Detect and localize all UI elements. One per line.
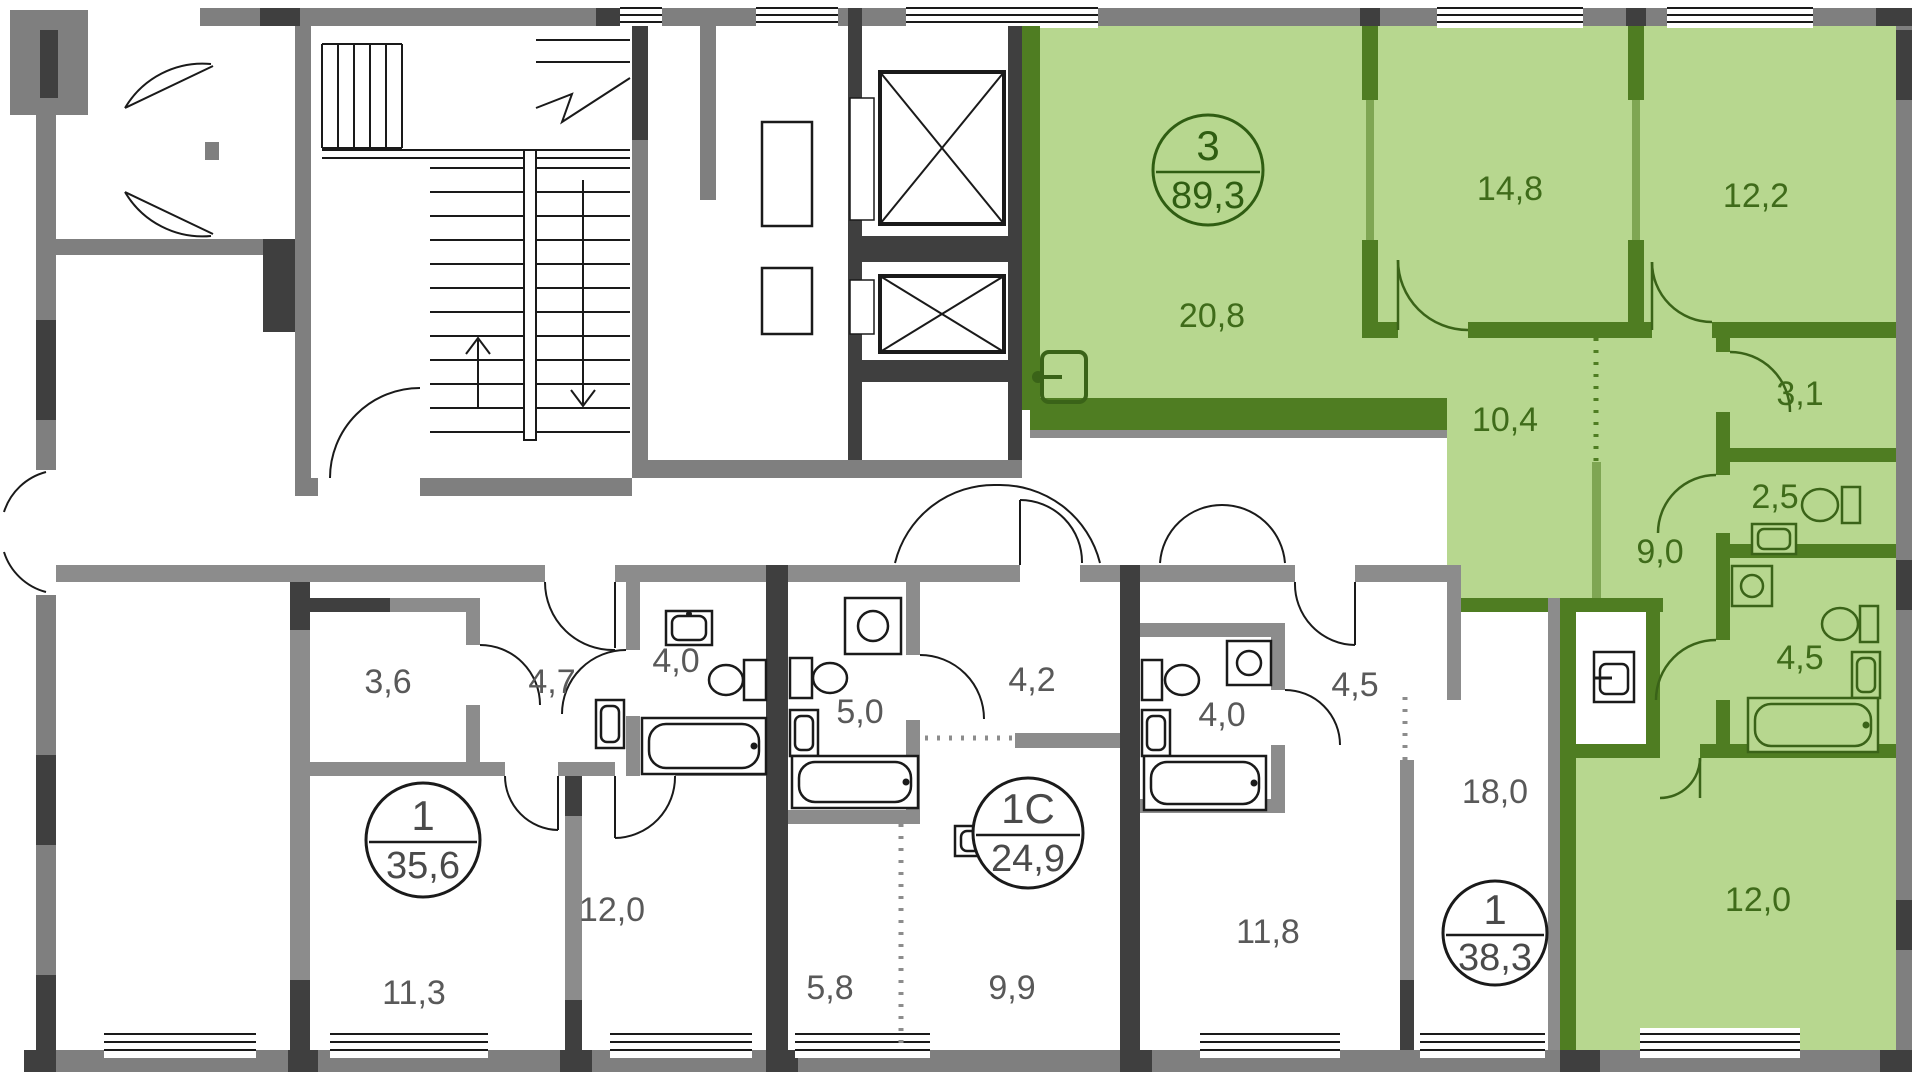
wall-lobby [36, 239, 263, 255]
wall-green [1716, 412, 1730, 462]
vent-shaft [762, 122, 812, 226]
window [1667, 2, 1813, 28]
apartment-type: 3 [1196, 122, 1219, 169]
apartment-badge-1-38-3[interactable]: 1 38,3 [1443, 881, 1547, 985]
wall-shaft [700, 26, 716, 200]
corridor [56, 485, 1447, 582]
wall-seg-dark [24, 1050, 56, 1072]
wall-green [1716, 533, 1730, 640]
wall-green [1362, 240, 1378, 338]
wall-green [1362, 26, 1378, 100]
wall-green [1716, 462, 1730, 475]
wall-green-thin [1632, 100, 1640, 240]
room-label: 9,0 [1636, 533, 1683, 571]
room-label: 9,9 [988, 969, 1035, 1007]
apartment-type: 1 [411, 792, 434, 839]
elevator-shaft-2 [880, 276, 1004, 352]
wall-corridor [1355, 565, 1447, 582]
entry-door-leaf [125, 66, 213, 108]
wall-seg-dark [1120, 1050, 1152, 1072]
wall-corridor [615, 565, 1020, 582]
wall-elevator [848, 26, 862, 460]
stair-door-arc [330, 388, 420, 478]
room-label: 14,8 [1477, 170, 1543, 208]
elevator-core [848, 26, 1022, 478]
apartment-badge-1c-24-9[interactable]: 1С 24,9 [973, 778, 1083, 888]
sink-icon [1752, 524, 1796, 554]
wall-elevator [862, 236, 1008, 262]
apartment-area: 89,3 [1171, 175, 1245, 217]
corridor-door-arc [997, 485, 1100, 563]
room-label: 4,2 [1008, 661, 1055, 699]
wall-seg-dark [848, 8, 862, 26]
toilet-icon [1802, 487, 1860, 523]
floor-plan-canvas: 20,8 14,8 12,2 10,4 3,1 2,5 9,0 4,5 12,0… [0, 0, 1920, 1080]
wall-seg-dark [1876, 8, 1912, 26]
apartment-type: 1 [1483, 886, 1506, 933]
wall-elevator-bottom [848, 460, 1022, 478]
wall-seg-dark [1896, 30, 1912, 100]
apartment-area: 35,6 [386, 845, 460, 887]
corridor-door-arc [1160, 505, 1222, 563]
wall-pier-dark [263, 239, 295, 332]
elevator-shaft-1 [880, 72, 1004, 224]
wall-stub [205, 142, 219, 160]
wall-seg-dark [260, 8, 300, 26]
corridor-door-arc [1222, 505, 1285, 563]
room-label: 3,6 [364, 663, 411, 701]
bathtub-icon [1748, 698, 1878, 752]
wall-corridor [1080, 565, 1295, 582]
room-label: 12,2 [1723, 177, 1789, 215]
wall-stair-left [295, 26, 311, 478]
apartment-badge-3-89-3[interactable]: 3 89,3 [1153, 115, 1263, 225]
wall-shaft-dark [632, 26, 648, 140]
wall-separation [1120, 565, 1140, 1050]
window [1640, 1028, 1800, 1058]
wall-green [1576, 744, 1646, 758]
wall-seg-dark [596, 8, 620, 26]
service-shafts [632, 26, 848, 478]
room-label: 5,8 [806, 969, 853, 1007]
apartment-area: 24,9 [991, 838, 1065, 880]
wall-pier-core [40, 30, 58, 98]
room-label: 2,5 [1751, 478, 1798, 516]
stairs-flights [430, 40, 630, 440]
wall-green-thin [1366, 100, 1374, 240]
wall-green [1030, 398, 1447, 430]
wall-seg-dark [1896, 900, 1912, 950]
room-label: 4,0 [1198, 696, 1245, 734]
apartment-badge-1-35-6[interactable]: 1 35,6 [366, 783, 480, 897]
side-entry-door-arc [4, 552, 46, 592]
wall-green [1628, 26, 1644, 100]
sink-icon [1852, 652, 1880, 698]
room-label: 4,0 [652, 642, 699, 680]
apartment-type: 1С [1001, 785, 1055, 832]
wall-green [1468, 322, 1652, 338]
window [906, 2, 1098, 28]
elevator-vent-slot [850, 280, 874, 334]
wall-green-outer [1548, 598, 1560, 1050]
wall-separation [766, 565, 788, 1050]
sink-icon [1594, 652, 1634, 702]
stairwell [295, 26, 632, 496]
room-label: 12,0 [579, 891, 645, 929]
wall-green [1022, 26, 1040, 410]
wall-seg-dark [766, 1050, 798, 1072]
wall-seg-dark [1626, 8, 1646, 26]
wall-seg-dark [1896, 560, 1912, 610]
wall-green [1378, 322, 1398, 338]
room-label: 3,1 [1776, 375, 1823, 413]
room-label: 11,3 [382, 974, 446, 1012]
wall-seg-dark [1560, 1050, 1600, 1072]
wall-green-thin [1592, 462, 1601, 598]
window [756, 2, 838, 28]
room-label: 4,7 [528, 663, 575, 701]
window [620, 2, 662, 28]
wall-stair-bottom [295, 478, 318, 496]
wall-seg-dark [1360, 8, 1380, 26]
wall-elevator [1008, 26, 1022, 460]
corridor-door-arc [895, 485, 997, 563]
wall-green [1560, 598, 1576, 1050]
wall-green [1712, 322, 1896, 338]
wall-seg-dark [1880, 1050, 1912, 1072]
wall-seg-dark [36, 975, 56, 1055]
wall-elevator [862, 360, 1008, 382]
side-entry-door-arc [4, 472, 46, 512]
window [1437, 2, 1583, 28]
vent-shaft [762, 268, 812, 334]
wall-seg-dark [36, 755, 56, 845]
door-arc [1020, 500, 1082, 563]
wall-corridor [56, 565, 545, 582]
wall-seg-dark [288, 1050, 318, 1072]
toilet-icon [1822, 606, 1878, 642]
stairs-upper-flight [322, 44, 478, 158]
room-label: 11,8 [1236, 913, 1300, 951]
entry-door-leaf [125, 192, 213, 234]
room-label: 12,0 [1725, 881, 1791, 919]
elevator-vent-slot [850, 98, 874, 220]
room-label: 10,4 [1472, 401, 1538, 439]
room-label: 18,0 [1462, 773, 1528, 811]
room-label: 20,8 [1179, 297, 1245, 335]
washer-icon [1732, 566, 1772, 606]
wall-green-outer [1030, 430, 1447, 438]
floor-plan-page: 20,8 14,8 12,2 10,4 3,1 2,5 9,0 4,5 12,0… [0, 0, 1920, 1080]
wall-seg-dark [36, 320, 56, 420]
wall-green [1716, 338, 1730, 352]
room-label: 4,5 [1776, 639, 1823, 677]
wall-shaft-bottom [648, 460, 848, 478]
room-label: 5,0 [836, 693, 883, 731]
wall-seg-dark [560, 1050, 592, 1072]
room-fill-20-8[interactable] [1040, 26, 1378, 430]
wall-stair-bottom [420, 478, 632, 496]
stair-break-line [536, 78, 630, 122]
apartment-area: 38,3 [1458, 937, 1532, 979]
wall-green [1730, 448, 1896, 462]
room-label: 4,5 [1331, 666, 1378, 704]
